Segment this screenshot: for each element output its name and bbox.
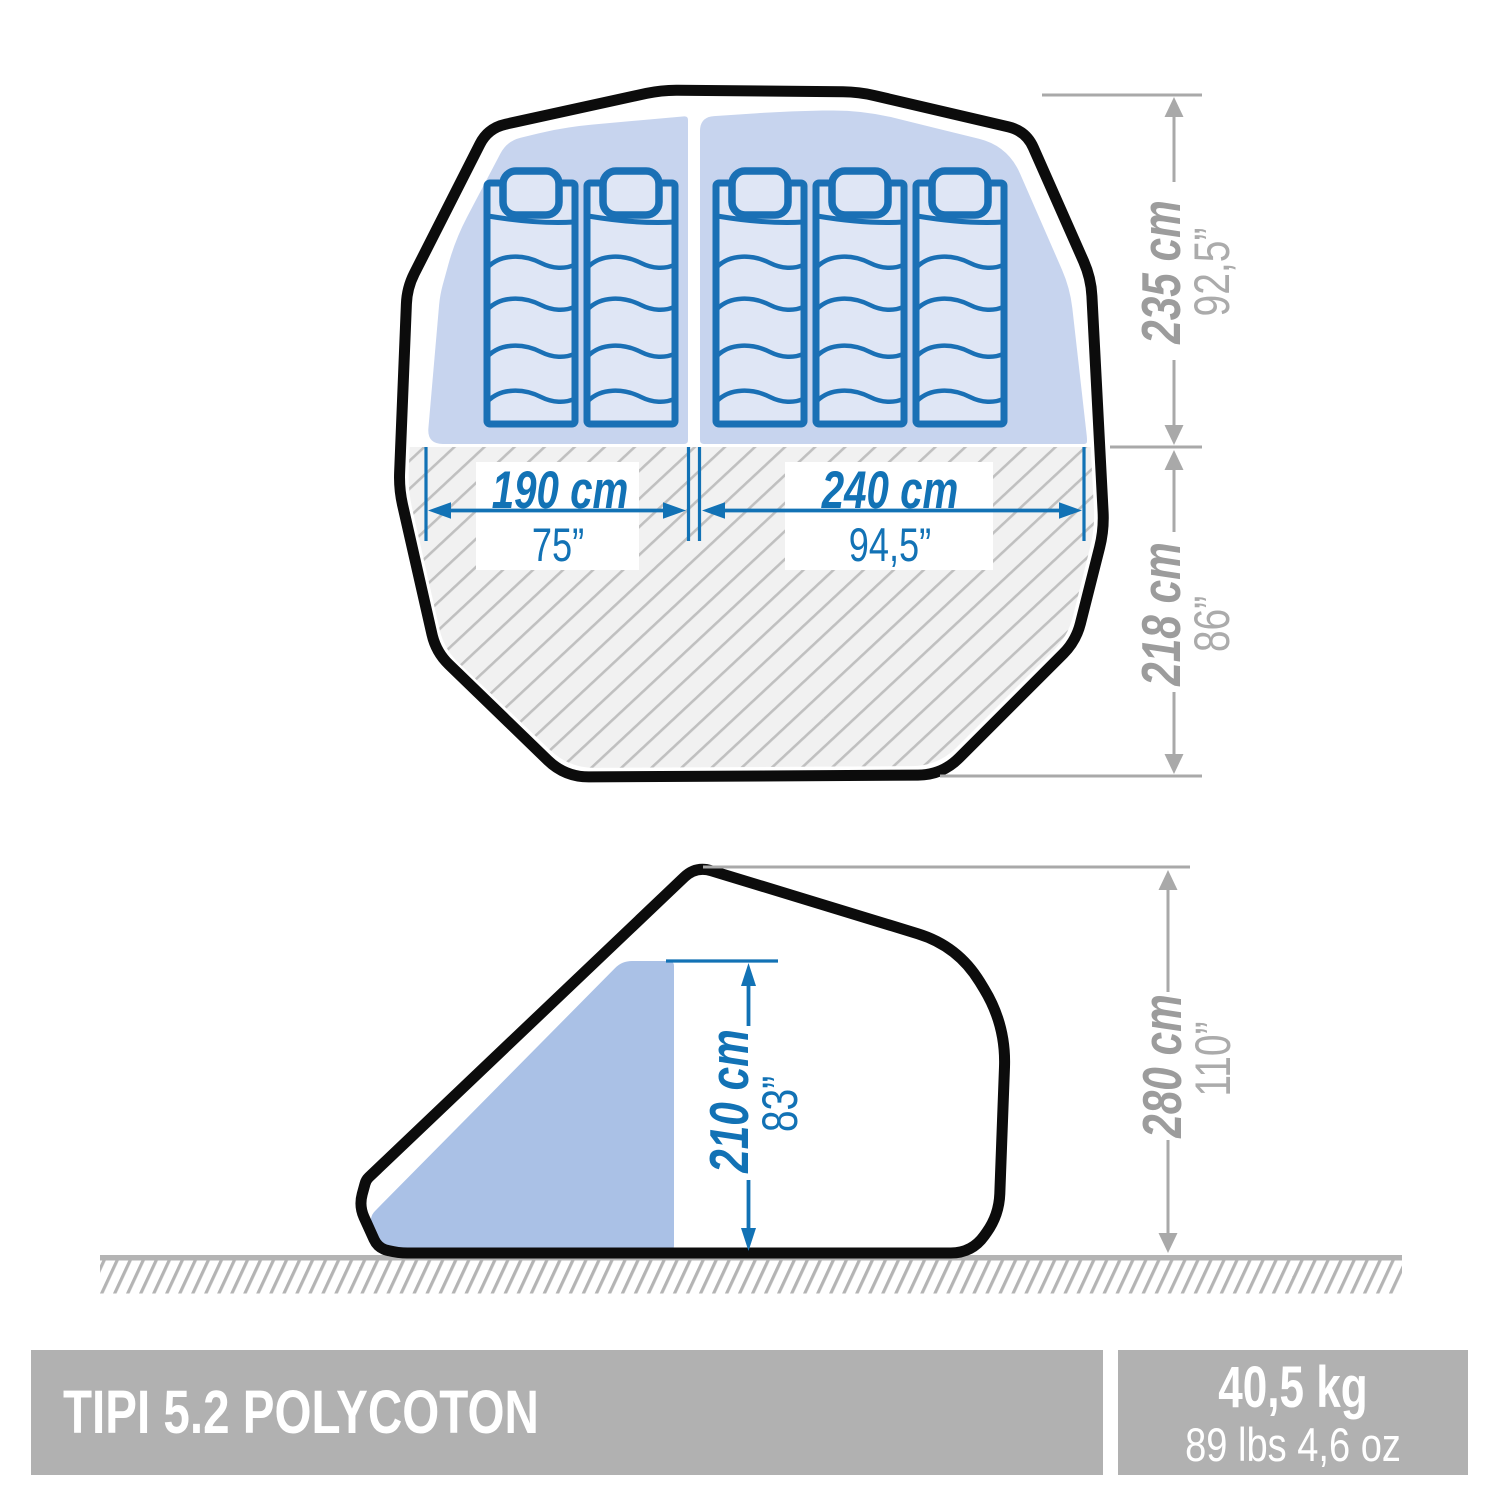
svg-text:240 cm: 240 cm: [821, 460, 958, 520]
svg-text:83”: 83”: [751, 1076, 808, 1132]
svg-text:92,5”: 92,5”: [1183, 228, 1240, 317]
svg-text:94,5”: 94,5”: [849, 518, 931, 571]
svg-text:40,5 kg: 40,5 kg: [1218, 1354, 1367, 1419]
svg-text:110”: 110”: [1184, 1021, 1241, 1096]
svg-text:75”: 75”: [532, 518, 584, 571]
svg-text:89 lbs 4,6 oz: 89 lbs 4,6 oz: [1185, 1419, 1401, 1472]
svg-text:TIPI 5.2 POLYCOTON: TIPI 5.2 POLYCOTON: [63, 1377, 539, 1446]
svg-text:86”: 86”: [1183, 596, 1240, 652]
svg-text:190 cm: 190 cm: [492, 460, 629, 520]
